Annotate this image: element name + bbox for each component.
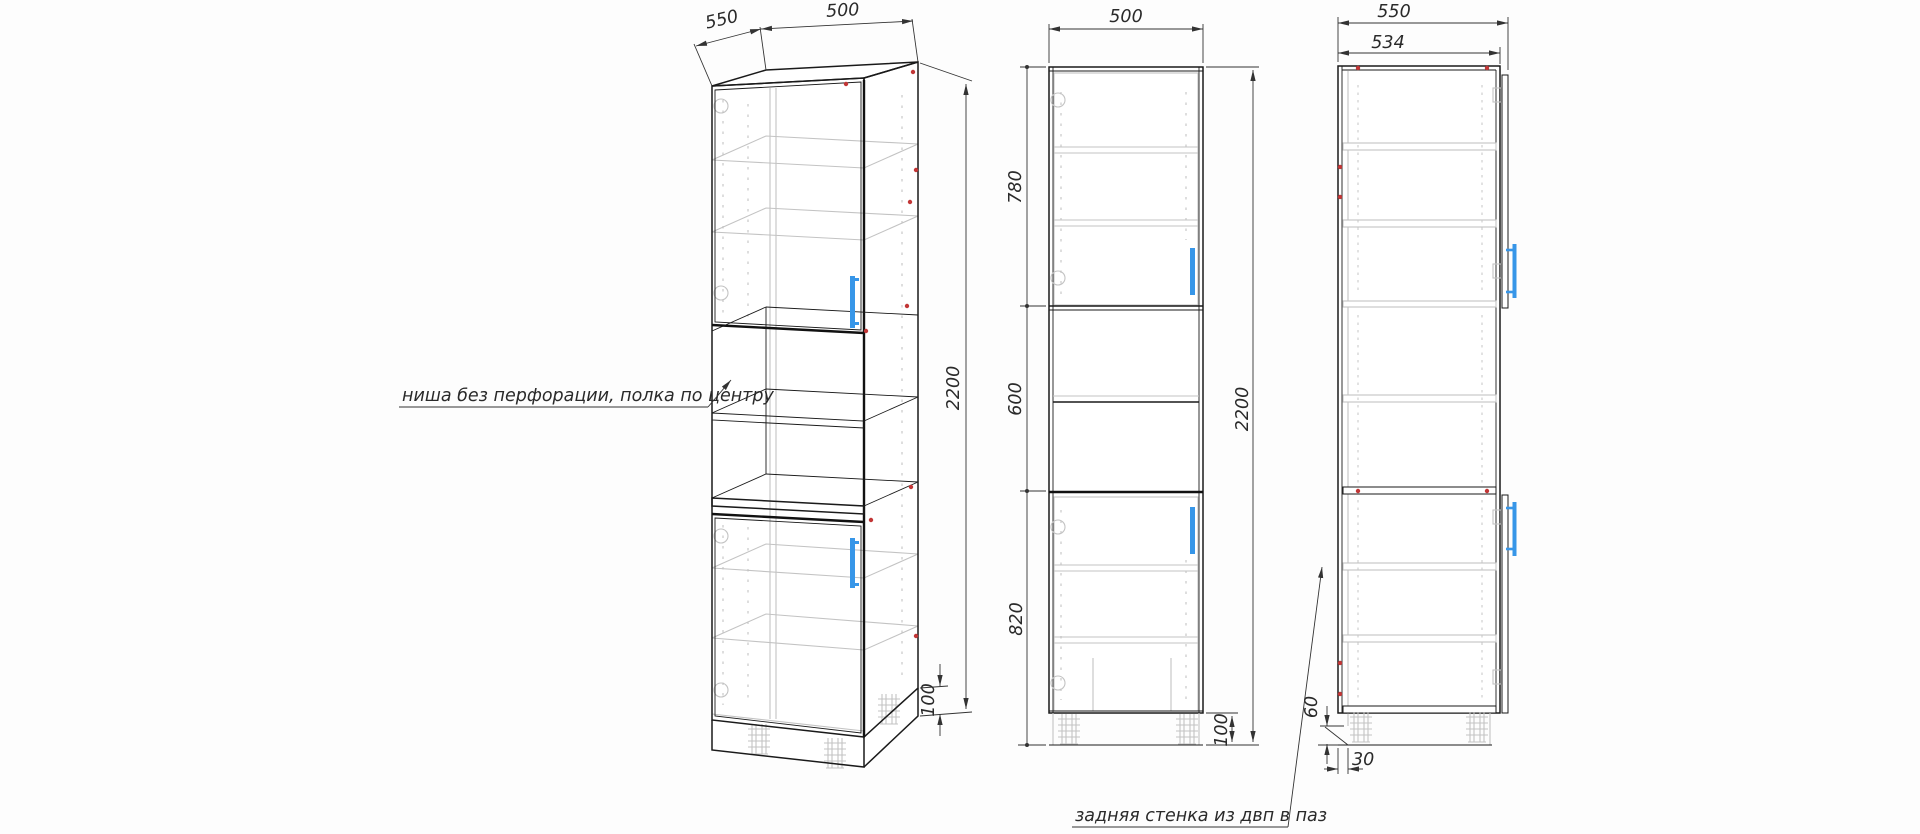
dim-front-upper-label: 780 [1006,170,1026,203]
side-door-handles [1506,244,1515,556]
dim-persp-depth-label: 550 [703,7,740,34]
dim-front-niche-label: 600 [1006,382,1026,415]
dim-front-lower-label: 820 [1007,602,1027,635]
front-view: 500 780 600 820 2200 100 [1006,7,1259,747]
perspective-view: 550 500 2200 100 [694,0,972,768]
niche-annotation: ниша без перфорации, полка по центру [402,386,774,406]
front-plinth [1049,713,1203,745]
side-plinth [1325,712,1492,745]
dim-side-depth-label: 550 [1377,2,1410,22]
dim-side-groove-offset-label: 30 [1352,750,1374,770]
dim-persp-plinth-label: 100 [919,683,939,716]
technical-drawing-canvas: 550 500 2200 100 [0,0,1920,834]
dim-persp-height-label: 2200 [944,366,964,411]
dim-side-carcass-depth-label: 534 [1371,33,1404,53]
door-handle-icon [1190,507,1195,554]
dim-persp-width-label: 500 [826,0,860,22]
dim-front-height-label: 2200 [1233,387,1253,432]
dim-front-plinth-label: 100 [1212,713,1232,746]
door-handle-icon [1190,248,1195,295]
dim-front-width-label: 500 [1109,7,1142,27]
side-view: 550 534 60 30 [1302,2,1515,774]
